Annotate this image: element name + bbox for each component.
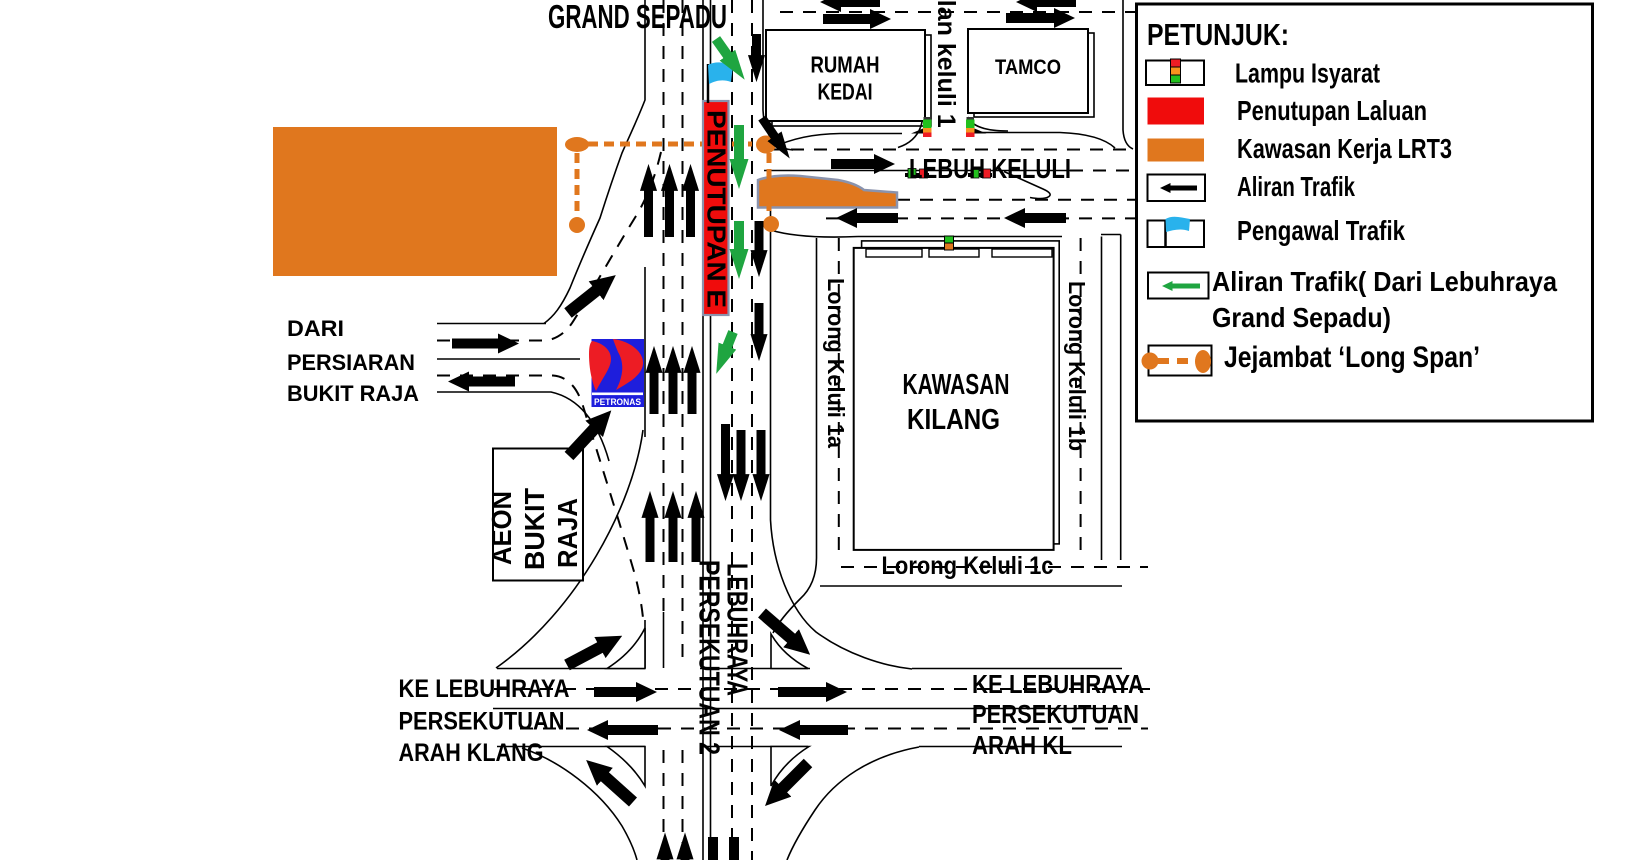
svg-text:RUMAH: RUMAH [811,52,880,78]
svg-text:Lampu Isyarat: Lampu Isyarat [1235,58,1380,89]
svg-text:DARI: DARI [287,316,344,341]
svg-text:PERSEKUTUAN: PERSEKUTUAN [399,708,565,736]
svg-text:PETRONAS: PETRONAS [594,397,641,407]
svg-text:RAJA: RAJA [552,498,583,568]
svg-text:Kawasan Kerja LRT3: Kawasan Kerja LRT3 [1237,133,1452,164]
svg-text:PERSIARAN: PERSIARAN [287,350,415,375]
svg-text:Lorong Keluli 1a: Lorong Keluli 1a [823,278,849,448]
svg-text:ARAH KL: ARAH KL [972,730,1072,760]
svg-text:PERSEKUTUAN 2: PERSEKUTUAN 2 [693,560,725,755]
svg-text:KILANG: KILANG [907,404,1000,436]
svg-text:PENUTUPAN E: PENUTUPAN E [702,110,732,308]
svg-text:BUKIT RAJA: BUKIT RAJA [287,381,419,406]
svg-text:Grand Sepadu): Grand Sepadu) [1212,302,1391,333]
svg-text:Pengawal Trafik: Pengawal Trafik [1237,215,1405,246]
svg-text:ARAH KLANG: ARAH KLANG [399,739,544,767]
svg-text:KE LEBUHRAYA: KE LEBUHRAYA [399,675,570,703]
svg-text:TAMCO: TAMCO [995,56,1061,79]
svg-text:Penutupan Laluan: Penutupan Laluan [1237,95,1427,126]
svg-text:KAWASAN: KAWASAN [903,369,1010,401]
svg-text:BUKIT: BUKIT [519,488,550,570]
svg-text:PETUNJUK:: PETUNJUK: [1147,17,1289,52]
svg-text:Jejambat ‘Long Span’: Jejambat ‘Long Span’ [1224,341,1480,374]
svg-text:AEON: AEON [486,491,517,565]
svg-text:Aliran Trafik( Dari Lebuhraya: Aliran Trafik( Dari Lebuhraya [1212,266,1557,297]
svg-text:Lorong Keluli 1c: Lorong Keluli 1c [882,552,1054,580]
svg-text:Jalan keluli 1: Jalan keluli 1 [932,0,960,128]
svg-text:KE LEBUHRAYA: KE LEBUHRAYA [972,669,1144,699]
svg-text:GRAND SEPADU: GRAND SEPADU [548,0,727,35]
svg-text:LEBUH KELULI: LEBUH KELULI [909,153,1071,184]
svg-text:PERSEKUTUAN: PERSEKUTUAN [972,699,1139,729]
svg-text:Aliran Trafik: Aliran Trafik [1237,171,1355,202]
svg-text:Lorong Keluli 1b: Lorong Keluli 1b [1064,281,1090,451]
svg-text:KEDAI: KEDAI [818,79,873,105]
